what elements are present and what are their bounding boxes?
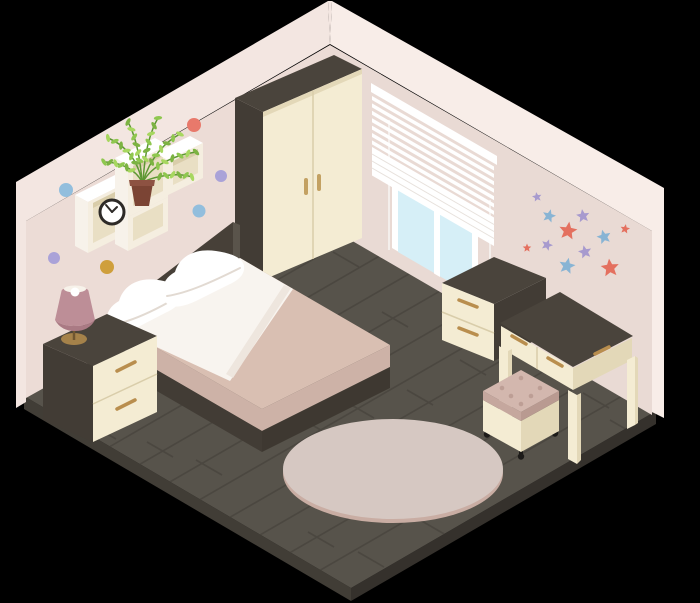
caster-wheel (518, 453, 524, 459)
tuft-button (500, 386, 505, 391)
wall-dot-decal (48, 252, 60, 264)
desk-leg-shade (577, 393, 581, 464)
wall-dot-decal (100, 260, 114, 274)
shelf-box-side (75, 195, 88, 253)
wall-dot-decal (59, 183, 73, 197)
rug-top (283, 419, 503, 519)
bedroom-illustration (0, 0, 700, 603)
desk-leg (568, 390, 577, 464)
tuft-button (538, 386, 543, 391)
pot-rim (129, 180, 155, 186)
tuft-button (519, 376, 524, 381)
wall-dot-decal (187, 118, 201, 132)
wardrobe-handle-left (304, 178, 308, 195)
lamp-bulb (71, 288, 80, 297)
plant-leaf (152, 153, 160, 157)
rug (283, 419, 503, 523)
plank-seam (457, 557, 483, 572)
wall-dot-decal (193, 205, 206, 218)
wall-dot-decal (215, 170, 227, 182)
tuft-button (509, 394, 514, 399)
clock (100, 200, 124, 224)
tuft-button (519, 402, 524, 407)
room-illustration (0, 0, 700, 603)
wardrobe-handle-right (317, 174, 321, 191)
tuft-button (529, 394, 534, 399)
desk-leg-shade (635, 356, 638, 425)
desk-leg (627, 356, 635, 429)
